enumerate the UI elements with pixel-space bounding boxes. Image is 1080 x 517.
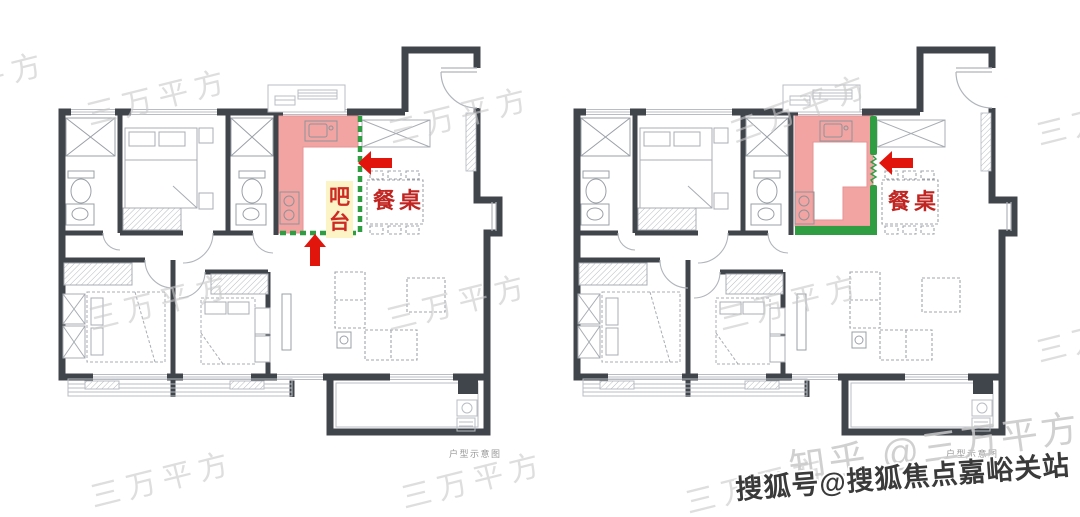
watermark-text: 三万平方 <box>1031 293 1080 371</box>
dining-table-label: 餐桌 <box>373 188 425 213</box>
arrow-up-icon <box>304 234 326 266</box>
watermark-text: 三万平方 <box>0 39 52 117</box>
bar-label-char-bottom: 台 <box>329 210 350 234</box>
bar-label-char-top: 吧 <box>329 186 350 209</box>
dining-table-label: 餐桌 <box>888 189 940 214</box>
page: 吧 台 餐桌 餐桌 三万平方 三万平方 三万平方 三万平方 三万平方 三万平方 … <box>0 0 1080 517</box>
watermark-text: 三万平方 <box>1031 76 1080 154</box>
kitchen-highlight <box>795 116 873 226</box>
